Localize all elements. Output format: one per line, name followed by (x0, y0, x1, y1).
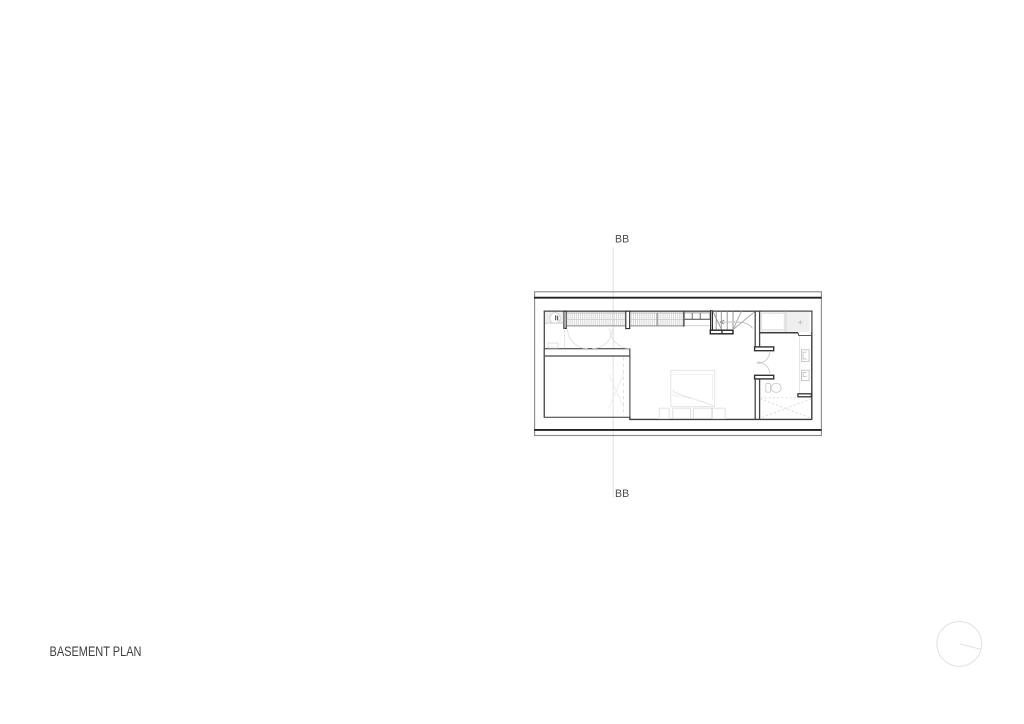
svg-text:BB: BB (615, 234, 629, 246)
svg-text:BB: BB (615, 488, 629, 500)
svg-text:BASEMENT PLAN: BASEMENT PLAN (50, 644, 142, 659)
